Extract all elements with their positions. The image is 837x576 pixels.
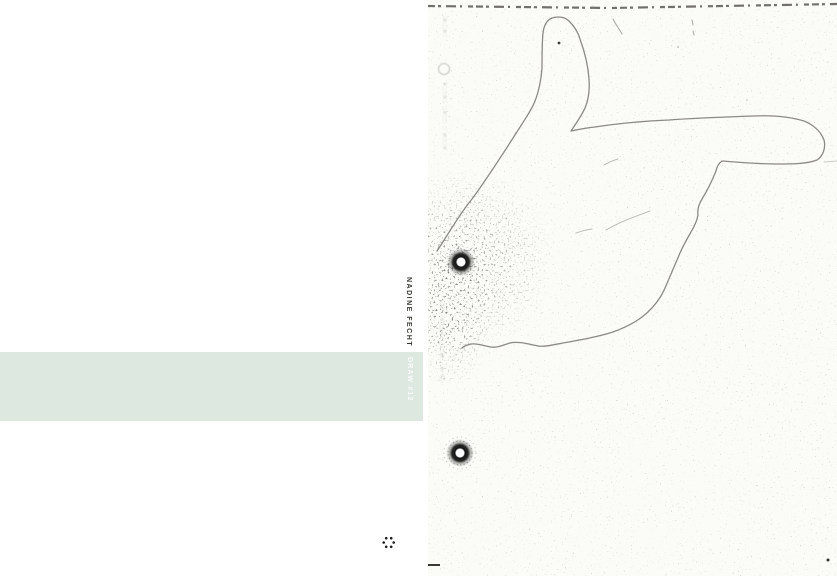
hand-drawing-scan: :≡:::≡:: ≡::::≡:: ::≡:::: :: ≡::::≡ ::≡:… <box>428 0 837 576</box>
spine-issue-label: DRAW #12 <box>406 357 413 402</box>
spine-artist-name: NADINE FECHT <box>405 277 412 347</box>
svg-text:≡::::≡:: ::≡:::: :: ≡::::≡: ≡::::≡:: ::≡:::: :: ≡::::≡ <box>441 82 447 150</box>
svg-text::≡:::≡::: :≡:::≡:: <box>441 16 447 38</box>
front-cover-scan: :≡:::≡:: ≡::::≡:: ::≡:::: :: ≡::::≡ ::≡:… <box>428 0 837 576</box>
title-band-back: #1 NORA SCHATTAUER #2 KATHARINA HINSBERG… <box>0 352 423 421</box>
dotted-circle-mark <box>379 533 399 553</box>
book-cover-spread: :≡:::≡:: ≡::::≡:: ::≡:::: :: ≡::::≡ ::≡:… <box>0 0 837 576</box>
